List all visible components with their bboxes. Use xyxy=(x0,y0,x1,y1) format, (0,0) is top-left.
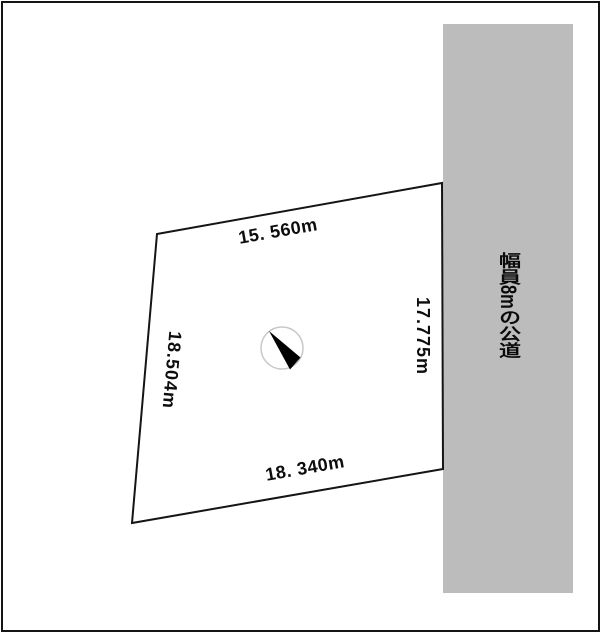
dimension-left-label: 18.504m xyxy=(158,330,187,410)
road-width-label: 幅員8mの公道 xyxy=(492,252,524,358)
dimension-right-label: 17.775m xyxy=(412,297,434,375)
north-arrow-needle xyxy=(269,331,301,370)
road-band: 幅員8mの公道 xyxy=(443,24,573,593)
dimension-top-label: 15. 560m xyxy=(237,214,319,249)
dimension-bottom-label: 18. 340m xyxy=(264,451,346,486)
north-arrow-circle xyxy=(261,327,303,369)
survey-diagram-canvas: 幅員8mの公道 15. 560m 18. 340m 18.504m 17.775… xyxy=(0,0,601,640)
north-arrow-icon xyxy=(261,327,303,370)
